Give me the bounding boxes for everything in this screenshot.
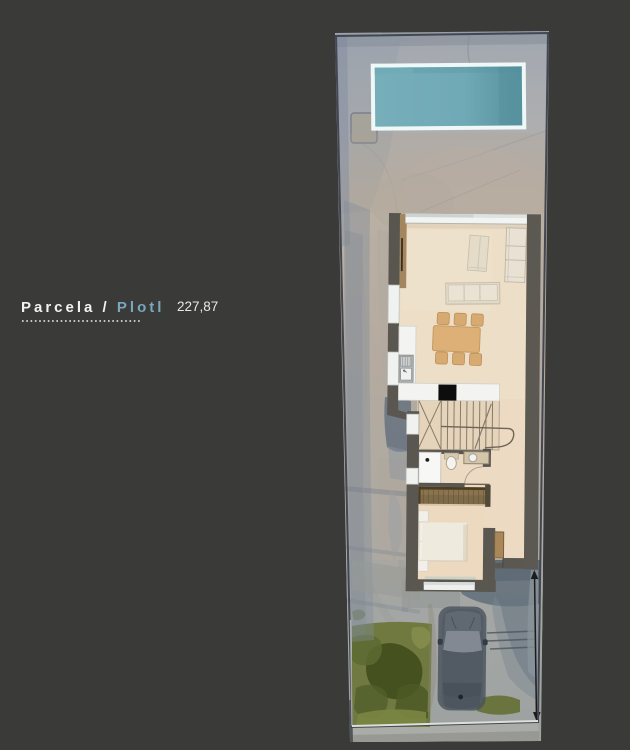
svg-text:227,87: 227,87 — [177, 299, 218, 314]
svg-text:Parcela / Plotl: Parcela / Plotl — [21, 299, 164, 316]
